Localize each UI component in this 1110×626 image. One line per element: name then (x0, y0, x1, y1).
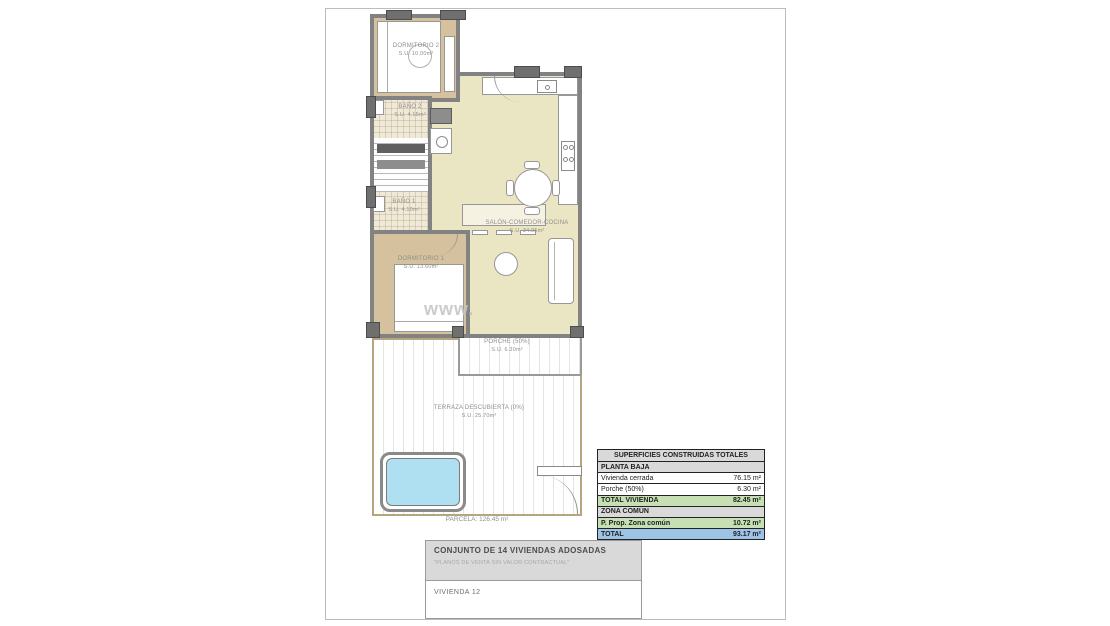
stair-landing-dark (377, 144, 425, 153)
table-row-total-vivienda: TOTAL VIVIENDA 82.45 m² (598, 496, 764, 507)
row-value: 6.30 m² (737, 486, 761, 493)
room-name: BAÑO 1 (392, 199, 415, 205)
coffee-table-symbol (494, 252, 518, 276)
washer-door (436, 136, 448, 148)
wall-pier (570, 326, 584, 338)
sink-symbol (537, 80, 557, 93)
room-area: S.U. 25.70m² (414, 413, 544, 420)
washer-symbol (430, 128, 452, 154)
floor-plan-sheet: DORMITORIO 2 S.U. 10.00m² BAÑO 2 S.U. 4.… (0, 0, 1110, 626)
sofa-symbol (548, 238, 574, 304)
burner (563, 145, 568, 150)
table-row-porche: Porche (50%) 6.30 m² (598, 484, 764, 495)
title-block-header: CONJUNTO DE 14 VIVIENDAS ADOSADAS "PLANO… (426, 541, 641, 581)
row-label: P. Prop. Zona común (601, 520, 670, 527)
room-label-bathroom-1: BAÑO 1 S.U. 4.10m² (362, 199, 446, 214)
wall-pier (452, 326, 464, 338)
areas-table-header: SUPERFICIES CONSTRUIDAS TOTALES (598, 450, 764, 462)
room-label-bedroom-2: DORMITORIO 2 S.U. 10.00m² (376, 43, 456, 58)
table-row-planta-baja: PLANTA BAJA (598, 462, 764, 473)
stair-mid-dark (377, 160, 425, 169)
room-name: TERRAZA DESCUBIERTA (0%) (434, 405, 524, 411)
table-row-vivienda-cerrada: Vivienda cerrada 76.15 m² (598, 473, 764, 484)
unit-label: VIVIENDA 12 (434, 589, 633, 596)
row-value: 76.15 m² (733, 475, 761, 482)
room-label-bedroom-1: DORMITORIO 1 S.U. 13.60m² (377, 256, 465, 271)
sink-drain (545, 85, 550, 90)
kitchen-counter-right (558, 95, 578, 205)
watermark-text: www. (424, 299, 474, 320)
title-block-body: VIVIENDA 12 (426, 581, 641, 604)
wall-pier (440, 10, 466, 20)
row-label: Vivienda cerrada (601, 475, 653, 482)
row-label: ZONA COMÚN (601, 508, 649, 515)
burner (569, 145, 574, 150)
row-label: TOTAL VIVIENDA (601, 497, 659, 504)
sofa-seat-line (554, 242, 571, 300)
title-block: CONJUNTO DE 14 VIVIENDAS ADOSADAS "PLANO… (425, 540, 642, 619)
room-name: SALÓN-COMEDOR-COCINA (485, 220, 568, 226)
room-name: DORMITORIO 1 (398, 256, 444, 262)
room-area: S.U. 6.30m² (457, 347, 557, 354)
row-value: 82.45 m² (733, 497, 761, 504)
row-label: TOTAL (601, 531, 624, 538)
areas-table: SUPERFICIES CONSTRUIDAS TOTALES PLANTA B… (597, 449, 765, 540)
pool-symbol (380, 452, 466, 512)
chair-symbol (552, 180, 560, 196)
wall-pier (514, 66, 540, 78)
bed-symbol-1 (394, 264, 464, 332)
wall-pier (366, 322, 380, 338)
room-name: DORMITORIO 2 (393, 43, 439, 49)
wall-pier (386, 10, 412, 20)
parcela-label: PARCELA: 126.45 m² (417, 516, 537, 523)
row-value: 10.72 m² (733, 520, 761, 527)
room-area: S.U. 4.15m² (368, 112, 452, 119)
table-row-total: TOTAL 93.17 m² (598, 529, 764, 539)
table-row-zona-comun: ZONA COMÚN (598, 507, 764, 518)
burner (569, 157, 574, 162)
chair-symbol (524, 161, 540, 169)
row-value: 93.17 m² (733, 531, 761, 538)
room-label-terrace: TERRAZA DESCUBIERTA (0%) S.U. 25.70m² (414, 405, 544, 420)
project-title: CONJUNTO DE 14 VIVIENDAS ADOSADAS (434, 546, 633, 555)
room-area: S.U. 10.00m² (376, 51, 456, 58)
table-row-p-prop-zona-comun: P. Prop. Zona común 10.72 m² (598, 518, 764, 529)
dining-table-symbol (514, 169, 552, 207)
wall-pier (564, 66, 582, 78)
row-label: PLANTA BAJA (601, 464, 650, 471)
chair-symbol (506, 180, 514, 196)
burner (563, 157, 568, 162)
room-area: S.U. 13.60m² (377, 264, 465, 271)
room-area: S.U. 34.05m² (477, 228, 577, 235)
room-label-porch: PORCHE (50%) S.U. 6.30m² (457, 339, 557, 354)
gate-step (537, 466, 582, 476)
pool-water (386, 458, 460, 506)
stove-symbol (561, 141, 575, 171)
room-name: PORCHE (50%) (484, 339, 530, 345)
room-area: S.U. 4.10m² (362, 207, 446, 214)
disclaimer-text: "PLANOS DE VENTA SIN VALOR CONTRACTUAL" (434, 560, 633, 566)
row-label: Porche (50%) (601, 486, 644, 493)
room-label-bathroom-2: BAÑO 2 S.U. 4.15m² (368, 104, 452, 119)
room-label-living: SALÓN-COMEDOR-COCINA S.U. 34.05m² (477, 220, 577, 235)
room-name: BAÑO 2 (398, 104, 421, 110)
chair-symbol (524, 207, 540, 215)
